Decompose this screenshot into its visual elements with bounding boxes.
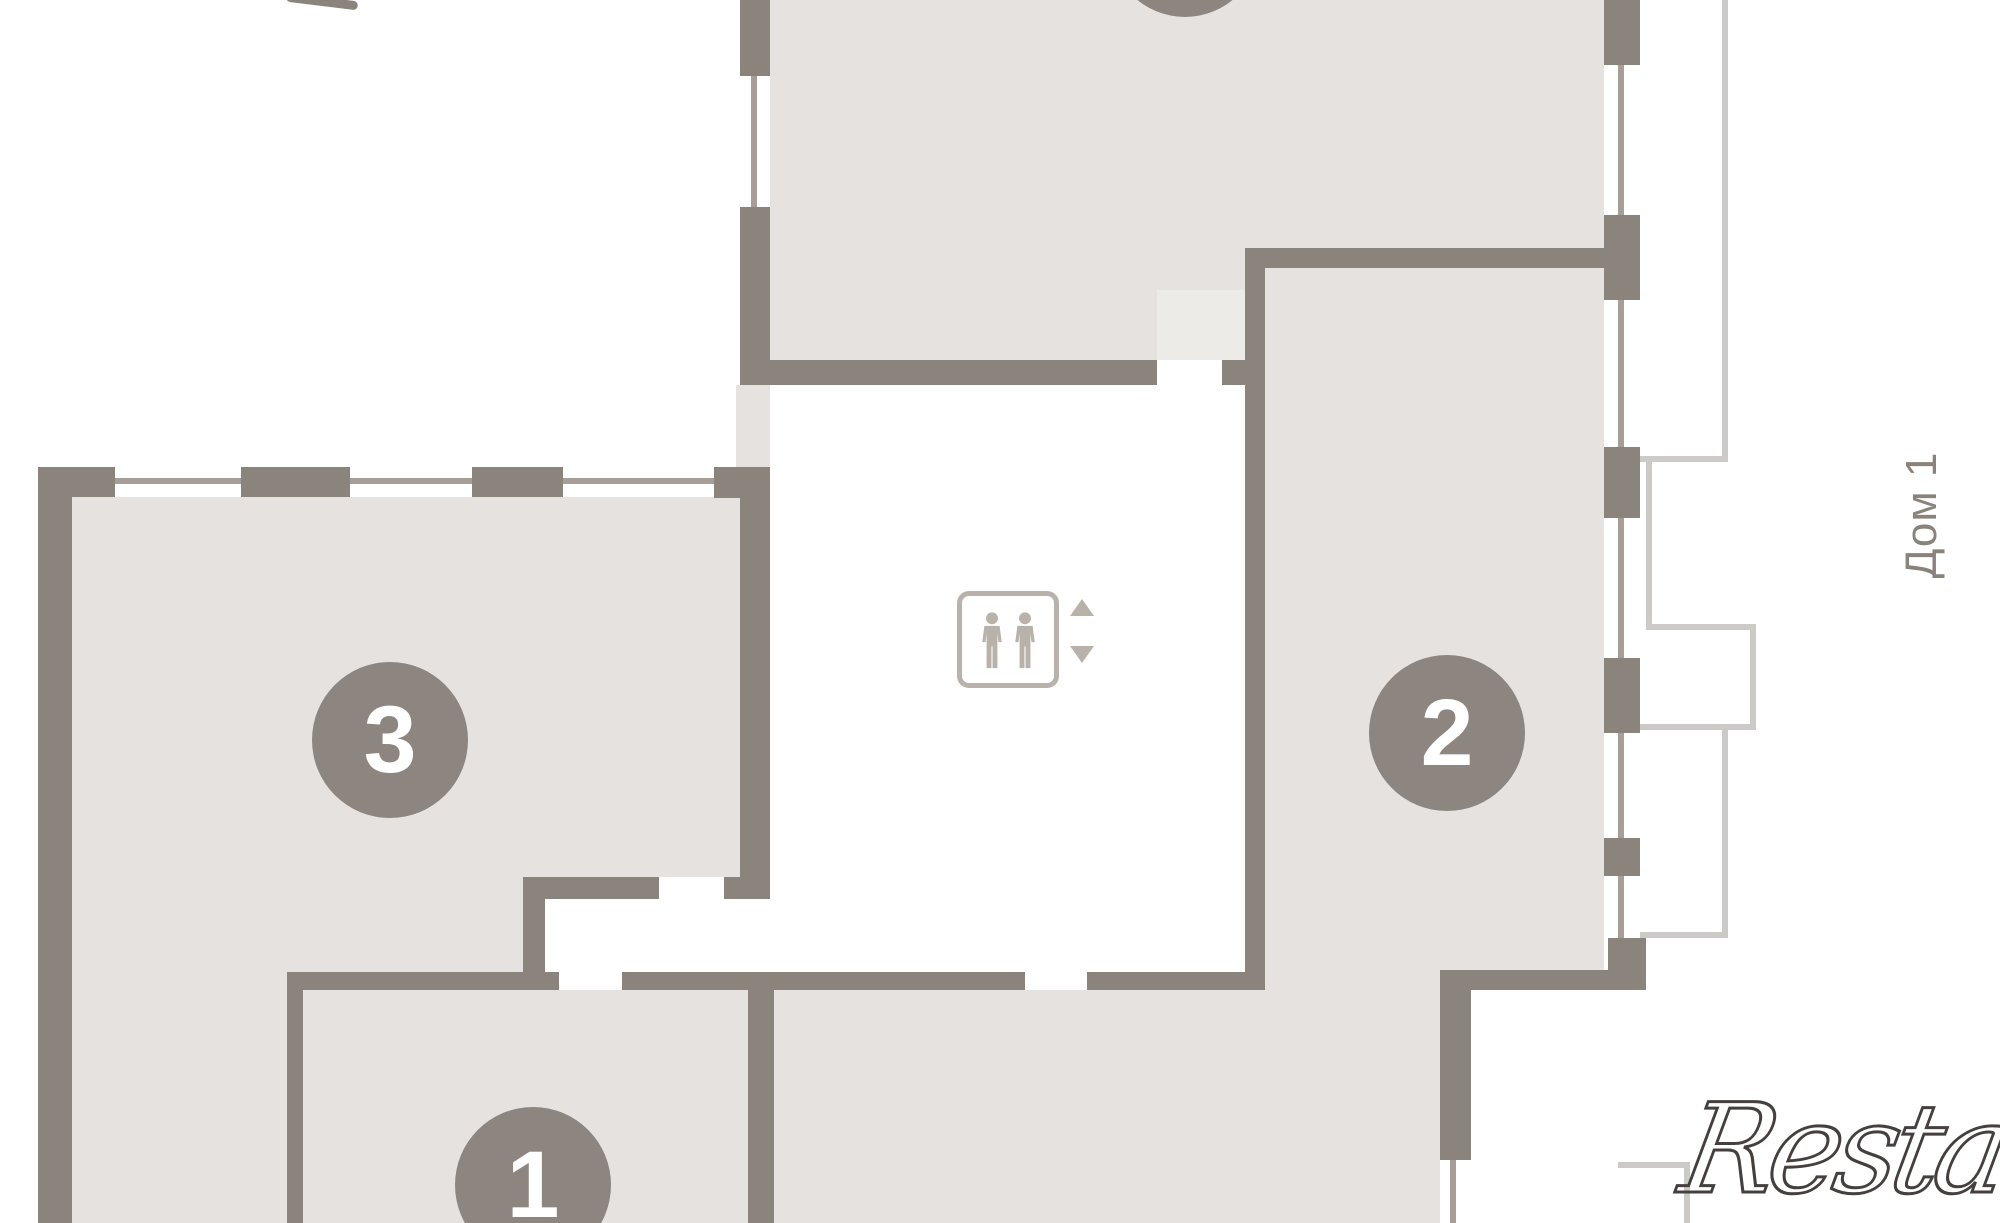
balcony-edge-2 (1640, 456, 1728, 462)
unit3-pier-2 (241, 467, 350, 497)
elevator-down-triangle-icon (1070, 646, 1094, 663)
unit-badge-3: 3 (312, 662, 468, 818)
unit3-pier-1 (38, 467, 115, 497)
corner-block (1608, 938, 1646, 974)
top-room-bottom-wall (742, 360, 1157, 385)
unit2-opening-fill (1257, 970, 1440, 990)
balcony-edge-8 (1640, 932, 1728, 938)
right-pier-5 (1604, 838, 1640, 876)
right-window-5 (1618, 876, 1624, 938)
door-area-fill (1157, 290, 1245, 360)
balcony-edge-9 (1618, 1162, 1690, 1168)
balcony-edge-6 (1640, 724, 1756, 730)
unit-badge-number: 2 (1421, 686, 1474, 781)
unit3-inner-wall-h (523, 877, 659, 899)
top-room-bottom-stub (1222, 360, 1245, 385)
long-wall-seg-3 (1087, 972, 1257, 990)
unit1-left-wall (287, 990, 303, 1223)
person-icon (1012, 611, 1038, 669)
elevator-up-triangle-icon (1070, 599, 1094, 616)
unit3-corridor-wall (740, 498, 770, 877)
long-wall-seg-1 (287, 972, 559, 990)
wall-shaft-fill (736, 385, 770, 467)
balcony-edge-3 (1646, 456, 1652, 630)
floor-plan-canvas: 321 Дом 1 Restate (0, 0, 2000, 1223)
unit3-pier-4 (714, 467, 770, 498)
balcony-edge-1 (1722, 0, 1728, 462)
corridor-stub-wall (724, 877, 770, 899)
right-window-3 (1618, 518, 1624, 658)
unit2-left-wall (1245, 248, 1265, 990)
unit3-pier-3 (472, 467, 563, 497)
top-room-left-window (751, 76, 757, 207)
right-pier-4 (1604, 658, 1640, 733)
unit3-bottom-left-fill (72, 972, 287, 1223)
person-icon (979, 611, 1005, 669)
restate-watermark: Restate (1671, 1078, 2000, 1222)
right-window-2 (1618, 300, 1624, 447)
balcony-edge-4 (1646, 624, 1756, 630)
left-outer-wall (38, 467, 72, 1223)
bottom-right-window (1450, 1160, 1456, 1223)
balcony-edge-5 (1750, 624, 1756, 730)
right-window-1 (1618, 65, 1624, 215)
cut-off-plan-mark (286, 0, 359, 10)
right-pier-2 (1604, 215, 1640, 300)
right-window-4 (1618, 733, 1624, 838)
top-room-left-wall-upper (740, 0, 770, 76)
unit2-top-wall (1245, 248, 1604, 268)
unit3-top-window (72, 478, 714, 484)
right-pier-1 (1604, 0, 1640, 65)
balcony-edge-7 (1722, 724, 1728, 938)
long-wall-seg-2 (622, 972, 1025, 990)
unit2-room-fill (1265, 268, 1604, 970)
unit-badge-number: 3 (364, 693, 417, 788)
top-room-left-wall-lower (740, 207, 770, 385)
right-pier-3 (1604, 447, 1640, 518)
bottom-middle-room-fill (774, 990, 1440, 1223)
building-label: Дом 1 (1897, 415, 1947, 615)
elevator-icon (957, 591, 1059, 688)
unit3-lower-fill (72, 877, 523, 972)
unit1-divider-wall (748, 990, 774, 1223)
unit-badge-number: 1 (507, 1138, 560, 1223)
bottom-right-wall (1440, 990, 1471, 1160)
unit-badge-2: 2 (1369, 655, 1525, 811)
top-room-fill-right (1245, 0, 1604, 248)
